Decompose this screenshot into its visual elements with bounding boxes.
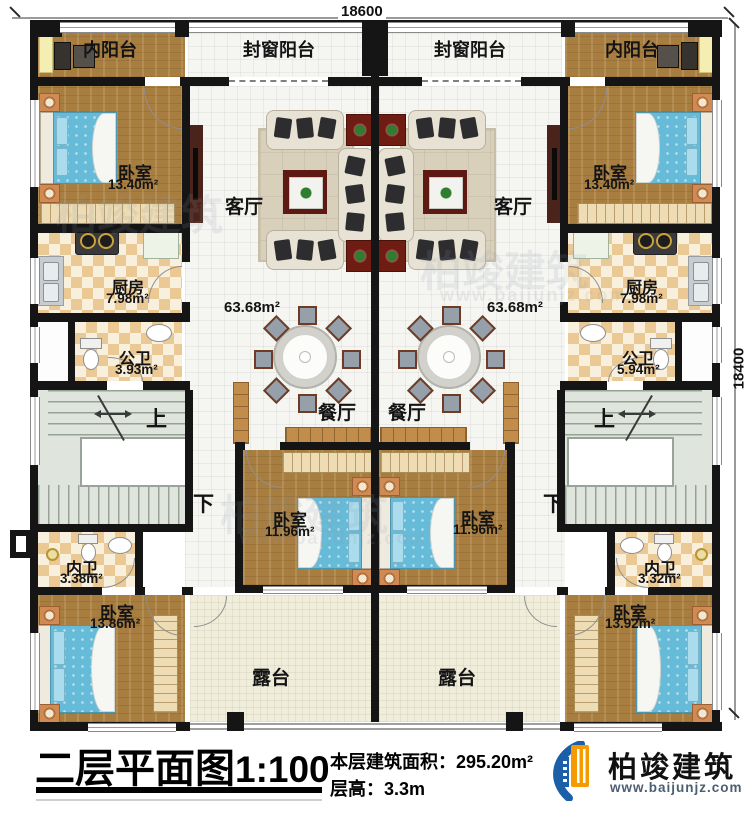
nightstand bbox=[39, 606, 60, 625]
sofa-right-chaise bbox=[378, 148, 414, 242]
balcony-shelf-left bbox=[39, 35, 53, 73]
area-label-bedroom-bl: 13.86m² bbox=[90, 616, 140, 631]
room-label-inner-balcony-left: 内阳台 bbox=[83, 36, 137, 62]
duct-left bbox=[38, 322, 68, 381]
cabinet bbox=[233, 382, 249, 444]
stair-label-down-left: 下 bbox=[193, 488, 214, 518]
floor-height-row: 层高：3.3m bbox=[330, 775, 425, 801]
cabinet bbox=[503, 382, 519, 444]
room-label-dining-left: 餐厅 bbox=[318, 398, 356, 425]
area-label-bedroom-tr: 13.40m² bbox=[584, 177, 634, 192]
stair-void-right bbox=[567, 437, 674, 487]
area-label-living-right: 63.68m² bbox=[487, 299, 543, 316]
room-label-terrace-right: 露台 bbox=[438, 663, 476, 690]
company-logo-icon bbox=[541, 741, 603, 801]
nightstand bbox=[39, 704, 60, 723]
room-label-terrace-left: 露台 bbox=[252, 663, 290, 690]
side-table bbox=[346, 114, 374, 146]
area-label-bedroom-tl: 13.40m² bbox=[108, 177, 158, 192]
area-label-bath-right: 5.94m² bbox=[617, 362, 660, 377]
room-label-living-right: 客厅 bbox=[494, 192, 532, 219]
nightstand bbox=[692, 93, 713, 112]
area-label-bath-left: 3.93m² bbox=[115, 362, 158, 377]
sofa-left-top bbox=[266, 110, 344, 150]
area-label-bedroom-br: 13.92m² bbox=[605, 616, 655, 631]
page-title: 二层平面图1:100 bbox=[35, 736, 330, 794]
side-table bbox=[378, 114, 406, 146]
area-label-bedroom-ml: 11.96m² bbox=[265, 524, 315, 539]
wardrobe-tr bbox=[577, 203, 712, 224]
sliding-door bbox=[229, 80, 328, 82]
floor-area-label: 本层建筑面积： bbox=[330, 752, 456, 772]
balcony-equipment-left bbox=[54, 42, 71, 70]
company-website: www.baijunjz.com bbox=[610, 780, 743, 795]
title-underline-thin bbox=[36, 799, 322, 801]
nightstand bbox=[692, 184, 713, 203]
wardrobe-mr bbox=[380, 452, 470, 473]
duct-right bbox=[682, 322, 712, 381]
nightstand bbox=[39, 93, 60, 112]
tv-right bbox=[552, 148, 557, 200]
dining-table-right bbox=[417, 325, 481, 389]
room-label-sealed-balcony-left: 封窗阳台 bbox=[243, 36, 315, 62]
balcony-equipment-right bbox=[681, 42, 698, 70]
room-label-dining-right: 餐厅 bbox=[388, 398, 426, 425]
dimension-right: 18400 bbox=[731, 336, 748, 402]
balcony-shelf-right bbox=[699, 35, 713, 73]
sofa-left-chaise bbox=[338, 148, 374, 242]
floor-height-value: 3.3m bbox=[384, 779, 425, 799]
area-label-living-left: 63.68m² bbox=[224, 299, 280, 316]
area-label-bedroom-mr: 11.96m² bbox=[453, 522, 503, 537]
stair-label-up-left: 上 bbox=[146, 403, 167, 433]
floor-area-row: 本层建筑面积：295.20m² bbox=[330, 748, 533, 774]
area-label-kitchen-right: 7.98m² bbox=[620, 291, 663, 306]
nightstand bbox=[692, 606, 713, 625]
nightstand bbox=[692, 704, 713, 723]
sofa-right-top bbox=[408, 110, 486, 150]
dining-table-left bbox=[273, 325, 337, 389]
area-label-ensuite-left: 3.38m² bbox=[60, 571, 103, 586]
dimension-top: 18600 bbox=[338, 3, 386, 20]
area-label-ensuite-right: 3.32m² bbox=[638, 571, 681, 586]
floor-area-value: 295.20m² bbox=[456, 752, 533, 772]
sliding-door bbox=[422, 80, 521, 82]
floor-height-label: 层高： bbox=[330, 779, 384, 799]
side-table bbox=[378, 240, 406, 272]
stair-label-down-right: 下 bbox=[543, 488, 564, 518]
title-underline bbox=[36, 787, 322, 793]
stair-void-left bbox=[80, 437, 187, 487]
side-table bbox=[346, 240, 374, 272]
area-label-kitchen-left: 7.98m² bbox=[106, 291, 149, 306]
plan-title-text: 二层平面图 bbox=[35, 747, 235, 791]
room-label-sealed-balcony-right: 封窗阳台 bbox=[434, 36, 506, 62]
room-label-inner-balcony-right: 内阳台 bbox=[605, 36, 659, 62]
room-label-living-left: 客厅 bbox=[225, 192, 263, 219]
sofa-left-bottom bbox=[266, 230, 344, 270]
plan-scale-text: 1:100 bbox=[235, 749, 330, 790]
stair-label-up-right: 上 bbox=[594, 403, 615, 433]
floor-plan-page: 柏竣建筑 柏竣建筑 www.baijunjz.com 柏竣建筑 www.baij… bbox=[0, 0, 750, 813]
wardrobe-ml bbox=[282, 452, 372, 473]
